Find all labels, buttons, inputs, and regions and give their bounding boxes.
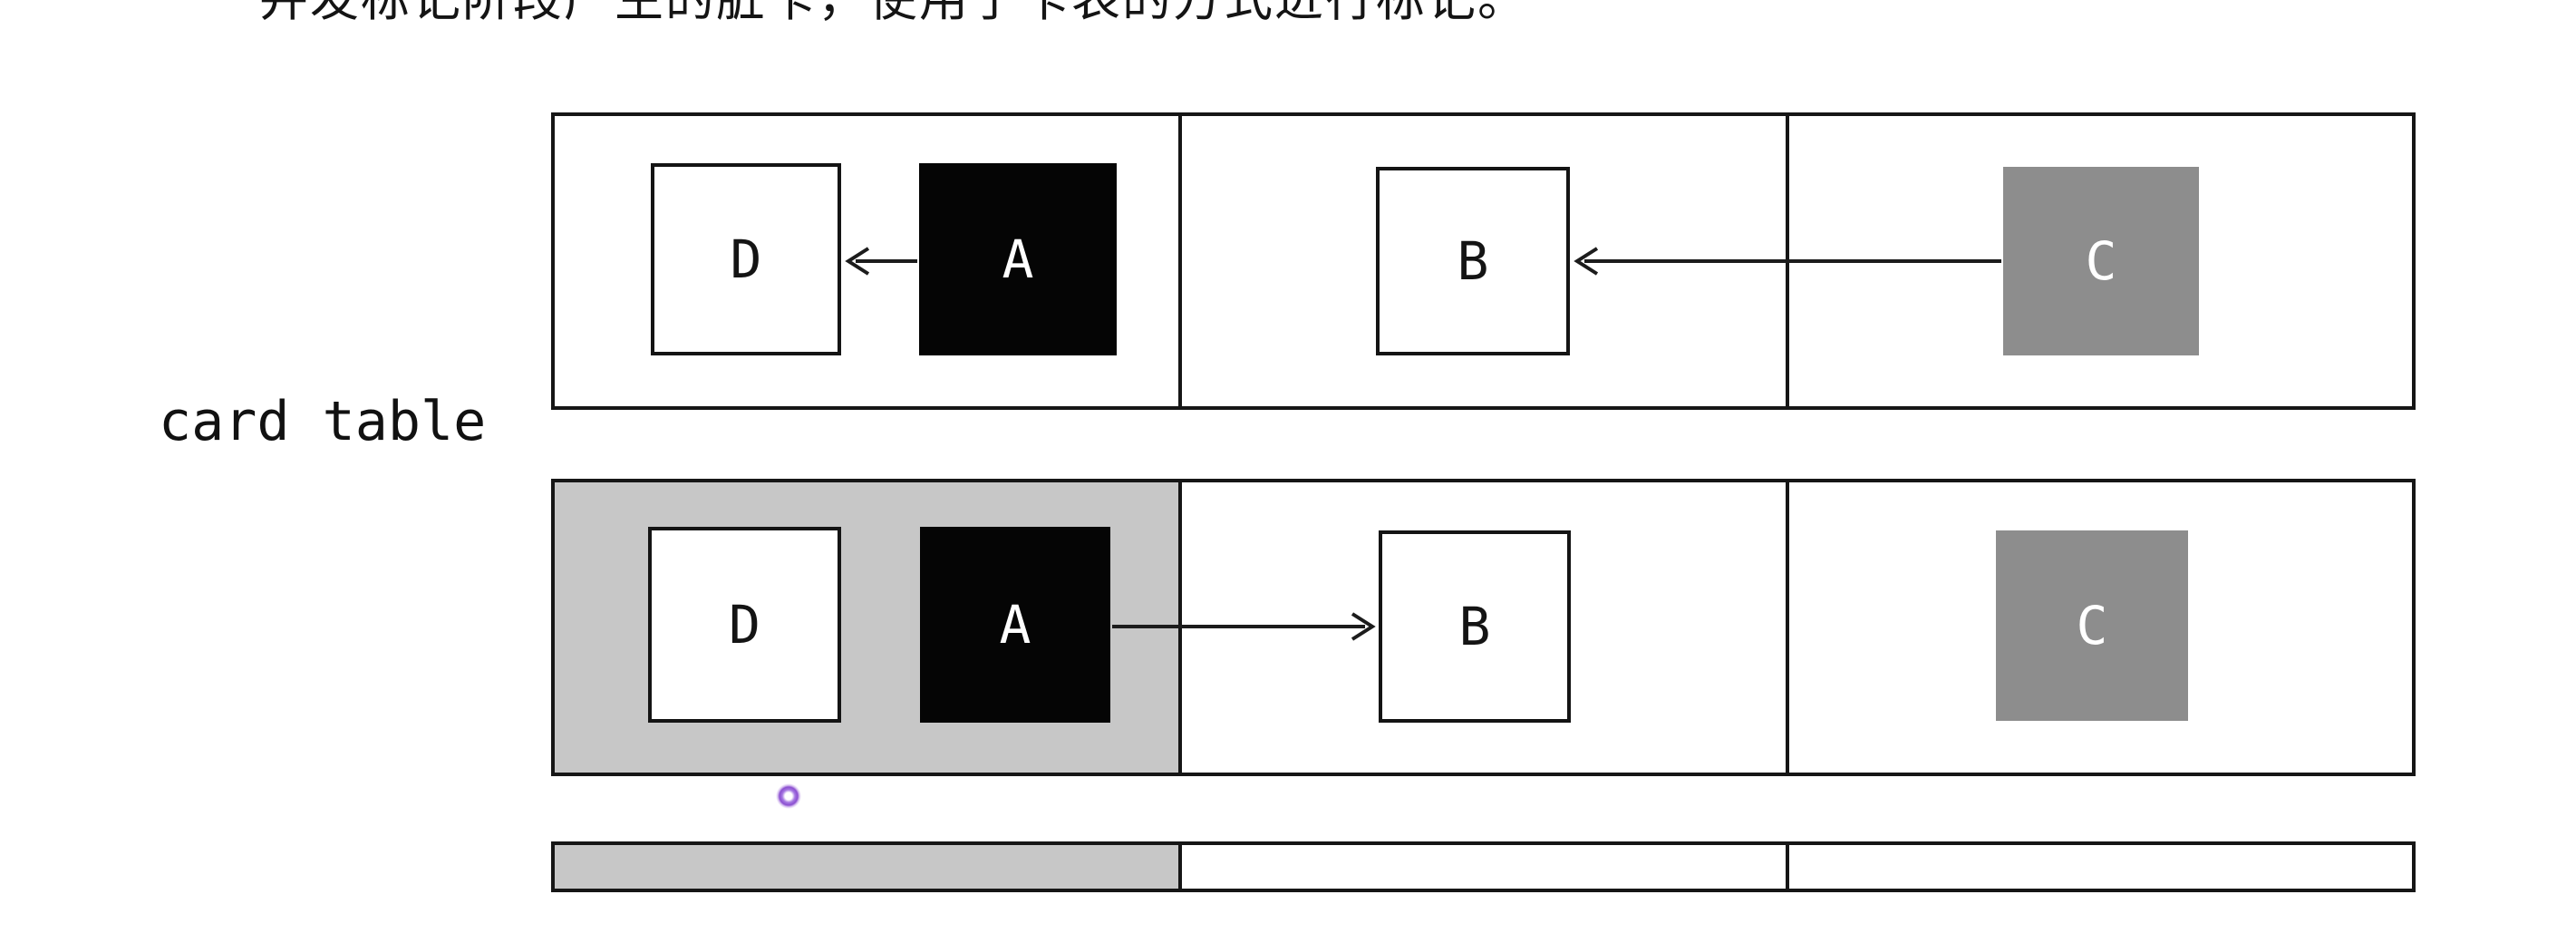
card-table-label: card table <box>159 384 486 459</box>
object-box-d: D <box>648 527 841 723</box>
mod-union-table-row <box>551 841 2416 892</box>
pointer-highlight-ring <box>776 783 801 809</box>
object-box-d: D <box>651 163 841 355</box>
region-divider <box>1786 482 1789 773</box>
object-box-a: A <box>920 527 1110 723</box>
region-divider <box>1178 116 1182 406</box>
object-box-a: A <box>919 163 1117 355</box>
slide-canvas: 并发标记阶段产生的脏卡，使用了卡表的方式进行标记。 D A B C card t… <box>0 0 2576 943</box>
object-box-c: C <box>2003 167 2199 355</box>
region-divider <box>1178 845 1182 889</box>
dirty-bit-cell <box>555 845 1182 889</box>
mod-union-table-label: mod union table <box>156 794 450 943</box>
object-box-c: C <box>1996 530 2188 721</box>
top-caption-clipped: 并发标记阶段产生的脏卡，使用了卡表的方式进行标记。 <box>259 0 1528 30</box>
object-box-b: B <box>1376 167 1570 355</box>
region-divider <box>1786 116 1789 406</box>
object-box-b: B <box>1379 530 1571 723</box>
region-divider <box>1786 845 1789 889</box>
region-divider <box>1178 482 1182 773</box>
